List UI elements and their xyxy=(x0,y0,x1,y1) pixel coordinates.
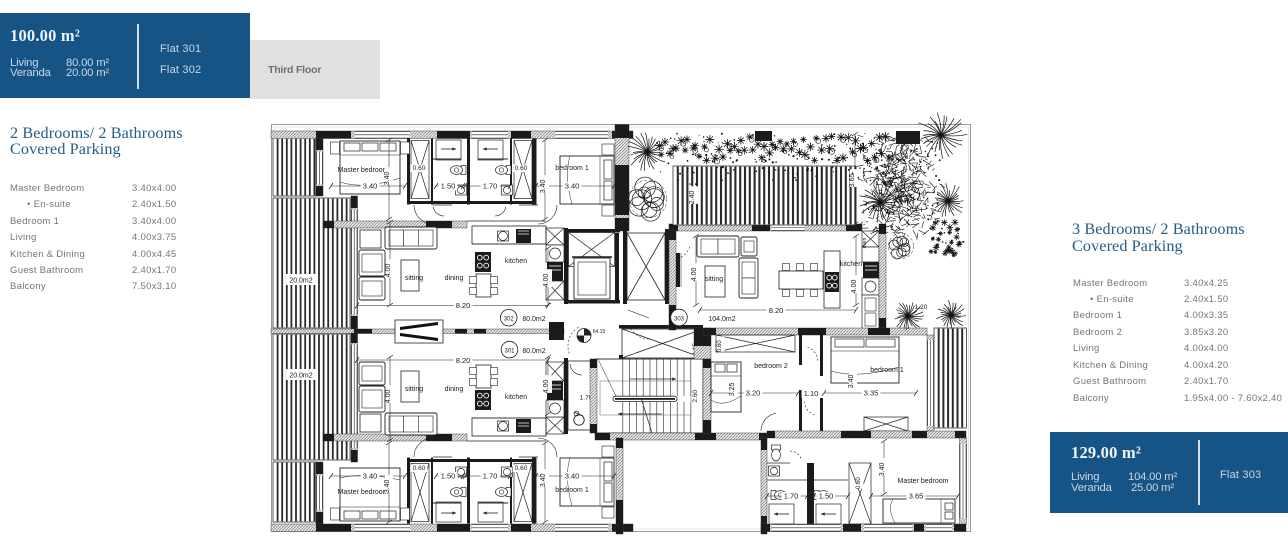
svg-text:8.20: 8.20 xyxy=(456,356,471,365)
svg-text:3.40: 3.40 xyxy=(565,472,580,481)
svg-text:20.0m2: 20.0m2 xyxy=(289,373,312,380)
svg-text:3.40: 3.40 xyxy=(540,474,547,488)
svg-text:bedroom 1: bedroom 1 xyxy=(555,487,589,494)
svg-text:3.65: 3.65 xyxy=(909,492,924,501)
svg-text:4.00: 4.00 xyxy=(385,390,392,404)
svg-text:2.40: 2.40 xyxy=(689,191,696,205)
svg-text:Master bedroom: Master bedroom xyxy=(338,489,389,496)
svg-text:8.20: 8.20 xyxy=(769,306,784,315)
svg-text:1.50: 1.50 xyxy=(441,472,456,481)
svg-text:8.20: 8.20 xyxy=(456,301,471,310)
svg-text:0.60: 0.60 xyxy=(856,477,862,489)
svg-text:3.40: 3.40 xyxy=(363,182,378,191)
svg-text:kitchen: kitchen xyxy=(505,258,527,265)
svg-text:dining: dining xyxy=(445,275,464,282)
svg-text:0.60: 0.60 xyxy=(717,340,723,352)
svg-text:1.70: 1.70 xyxy=(483,472,498,481)
svg-text:104.0m2: 104.0m2 xyxy=(708,316,735,323)
svg-text:oven: oven xyxy=(862,237,868,248)
svg-text:bedroom 1: bedroom 1 xyxy=(555,165,589,172)
svg-text:64.15: 64.15 xyxy=(593,329,606,335)
svg-text:4.00: 4.00 xyxy=(543,380,550,394)
svg-text:1.70: 1.70 xyxy=(784,492,799,501)
svg-text:1.70: 1.70 xyxy=(483,182,498,191)
svg-text:sitting: sitting xyxy=(705,276,723,283)
svg-text:0.60: 0.60 xyxy=(515,165,528,172)
svg-text:1.50: 1.50 xyxy=(441,182,456,191)
svg-text:20.0m2: 20.0m2 xyxy=(289,278,312,285)
svg-text:301: 301 xyxy=(504,348,515,354)
svg-text:sitting: sitting xyxy=(405,386,423,393)
svg-text:3.35: 3.35 xyxy=(864,389,879,398)
svg-text:4.00: 4.00 xyxy=(543,274,550,288)
svg-text:3.40: 3.40 xyxy=(363,472,378,481)
svg-text:80.0m2: 80.0m2 xyxy=(522,348,545,355)
svg-text:3.25: 3.25 xyxy=(729,383,736,397)
svg-text:kitchen: kitchen xyxy=(505,394,527,401)
svg-text:2.60: 2.60 xyxy=(692,390,699,403)
svg-text:3.40: 3.40 xyxy=(848,375,855,389)
svg-text:3.65: 3.65 xyxy=(849,174,856,188)
svg-text:3.40: 3.40 xyxy=(540,180,547,194)
svg-text:dining: dining xyxy=(445,386,464,393)
svg-text:3.40: 3.40 xyxy=(384,172,391,186)
svg-text:3.40: 3.40 xyxy=(384,480,391,494)
svg-text:0.60: 0.60 xyxy=(515,465,528,472)
svg-text:0.60: 0.60 xyxy=(413,165,426,172)
svg-text:1.50: 1.50 xyxy=(819,492,834,501)
svg-text:80.0m2: 80.0m2 xyxy=(522,316,545,323)
svg-text:bedroom 1: bedroom 1 xyxy=(870,367,904,374)
svg-text:kitchen: kitchen xyxy=(840,261,862,268)
svg-text:3.40: 3.40 xyxy=(565,182,580,191)
svg-text:4.00: 4.00 xyxy=(691,268,698,282)
svg-text:Master bedroom: Master bedroom xyxy=(898,478,949,485)
svg-text:4.00: 4.00 xyxy=(851,280,858,294)
svg-text:sitting: sitting xyxy=(405,275,423,282)
svg-text:1.10: 1.10 xyxy=(804,389,819,398)
svg-text:bedroom 2: bedroom 2 xyxy=(754,363,788,370)
svg-text:302: 302 xyxy=(504,317,515,323)
svg-text:303: 303 xyxy=(674,316,685,322)
svg-text:Master bedroom: Master bedroom xyxy=(338,167,389,174)
svg-text:3.20: 3.20 xyxy=(746,389,761,398)
svg-text:3.40: 3.40 xyxy=(879,463,886,477)
svg-text:0.60: 0.60 xyxy=(413,465,426,472)
svg-text:4.00: 4.00 xyxy=(385,264,392,278)
